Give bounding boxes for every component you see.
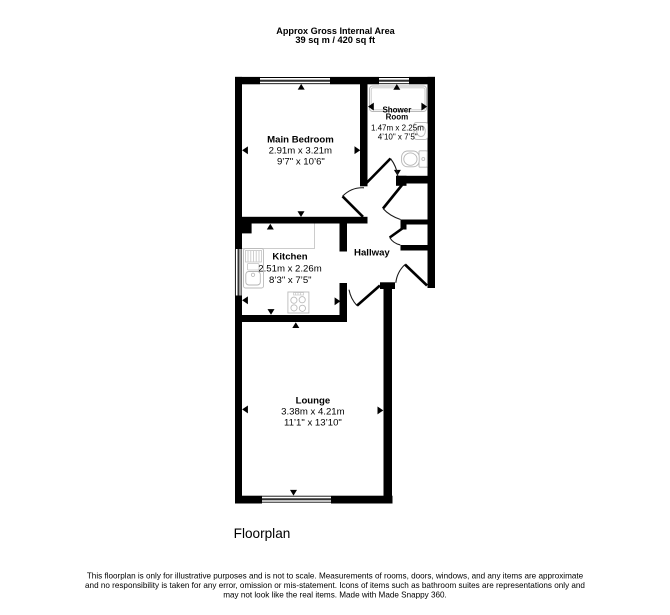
svg-text:39 sq m / 420 sq ft: 39 sq m / 420 sq ft bbox=[295, 35, 375, 45]
svg-text:Room: Room bbox=[386, 113, 409, 122]
svg-text:This floorplan is only for ill: This floorplan is only for illustrative … bbox=[87, 572, 584, 581]
svg-text:11’1" x 13’10": 11’1" x 13’10" bbox=[284, 418, 342, 429]
svg-text:9’7" x 10’6": 9’7" x 10’6" bbox=[277, 156, 325, 167]
svg-text:4’10" x 7’5": 4’10" x 7’5" bbox=[378, 132, 418, 141]
svg-text:2.51m x 2.26m: 2.51m x 2.26m bbox=[258, 264, 321, 275]
svg-text:Hallway: Hallway bbox=[354, 248, 390, 259]
svg-text:Kitchen: Kitchen bbox=[272, 252, 307, 263]
svg-text:Main Bedroom: Main Bedroom bbox=[267, 134, 334, 145]
svg-text:2.91m x 3.21m: 2.91m x 3.21m bbox=[269, 146, 332, 157]
svg-text:and no responsibility is taken: and no responsibility is taken for any e… bbox=[85, 581, 585, 590]
svg-text:8’3" x 7’5": 8’3" x 7’5" bbox=[269, 275, 312, 286]
svg-text:Floorplan: Floorplan bbox=[234, 526, 291, 541]
svg-text:Lounge: Lounge bbox=[296, 396, 331, 407]
svg-text:may not look like the real ite: may not look like the real items. Made w… bbox=[223, 591, 447, 600]
svg-text:3.38m x 4.21m: 3.38m x 4.21m bbox=[281, 406, 344, 417]
